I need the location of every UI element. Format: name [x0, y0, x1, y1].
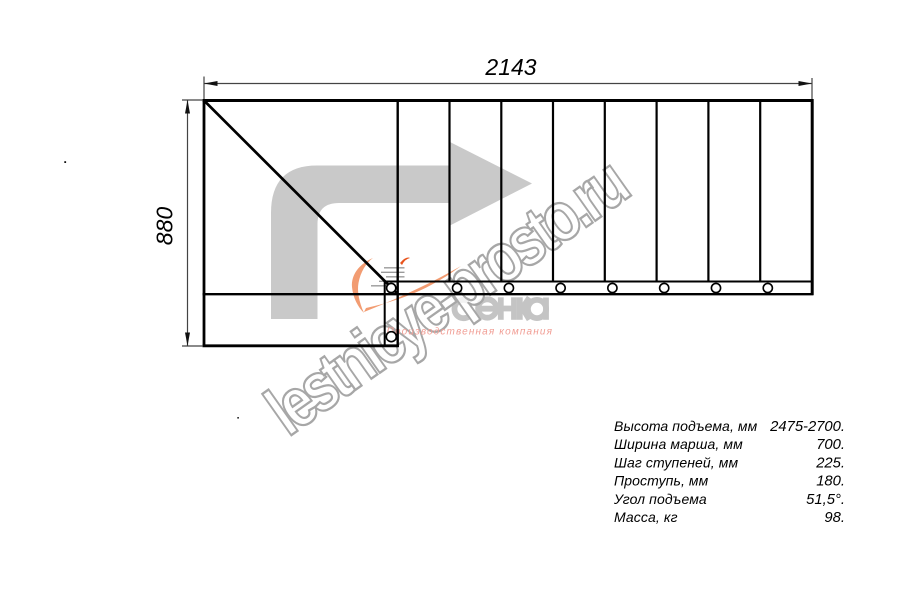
svg-text:Угол подъема: Угол подъема	[613, 491, 707, 507]
svg-text:Проступь, мм: Проступь, мм	[614, 473, 709, 489]
svg-text:700.: 700.	[816, 437, 845, 453]
svg-text:225.: 225.	[815, 455, 845, 471]
svg-text:Производственная компания: Производственная компания	[387, 327, 554, 338]
svg-text:Высота подъема, мм: Высота подъема, мм	[614, 418, 758, 434]
svg-text:98.: 98.	[824, 510, 845, 526]
svg-text:2475-2700.: 2475-2700.	[769, 419, 845, 435]
svg-text:Шаг ступеней, мм: Шаг ступеней, мм	[614, 454, 738, 470]
svg-text:180.: 180.	[816, 474, 845, 490]
svg-text:51,5°.: 51,5°.	[806, 492, 845, 508]
svg-text:880: 880	[152, 207, 178, 246]
svg-text:2143: 2143	[484, 54, 536, 80]
svg-text:Ширина марша, мм: Ширина марша, мм	[614, 436, 743, 452]
svg-text:Масса, кг: Масса, кг	[614, 509, 678, 525]
